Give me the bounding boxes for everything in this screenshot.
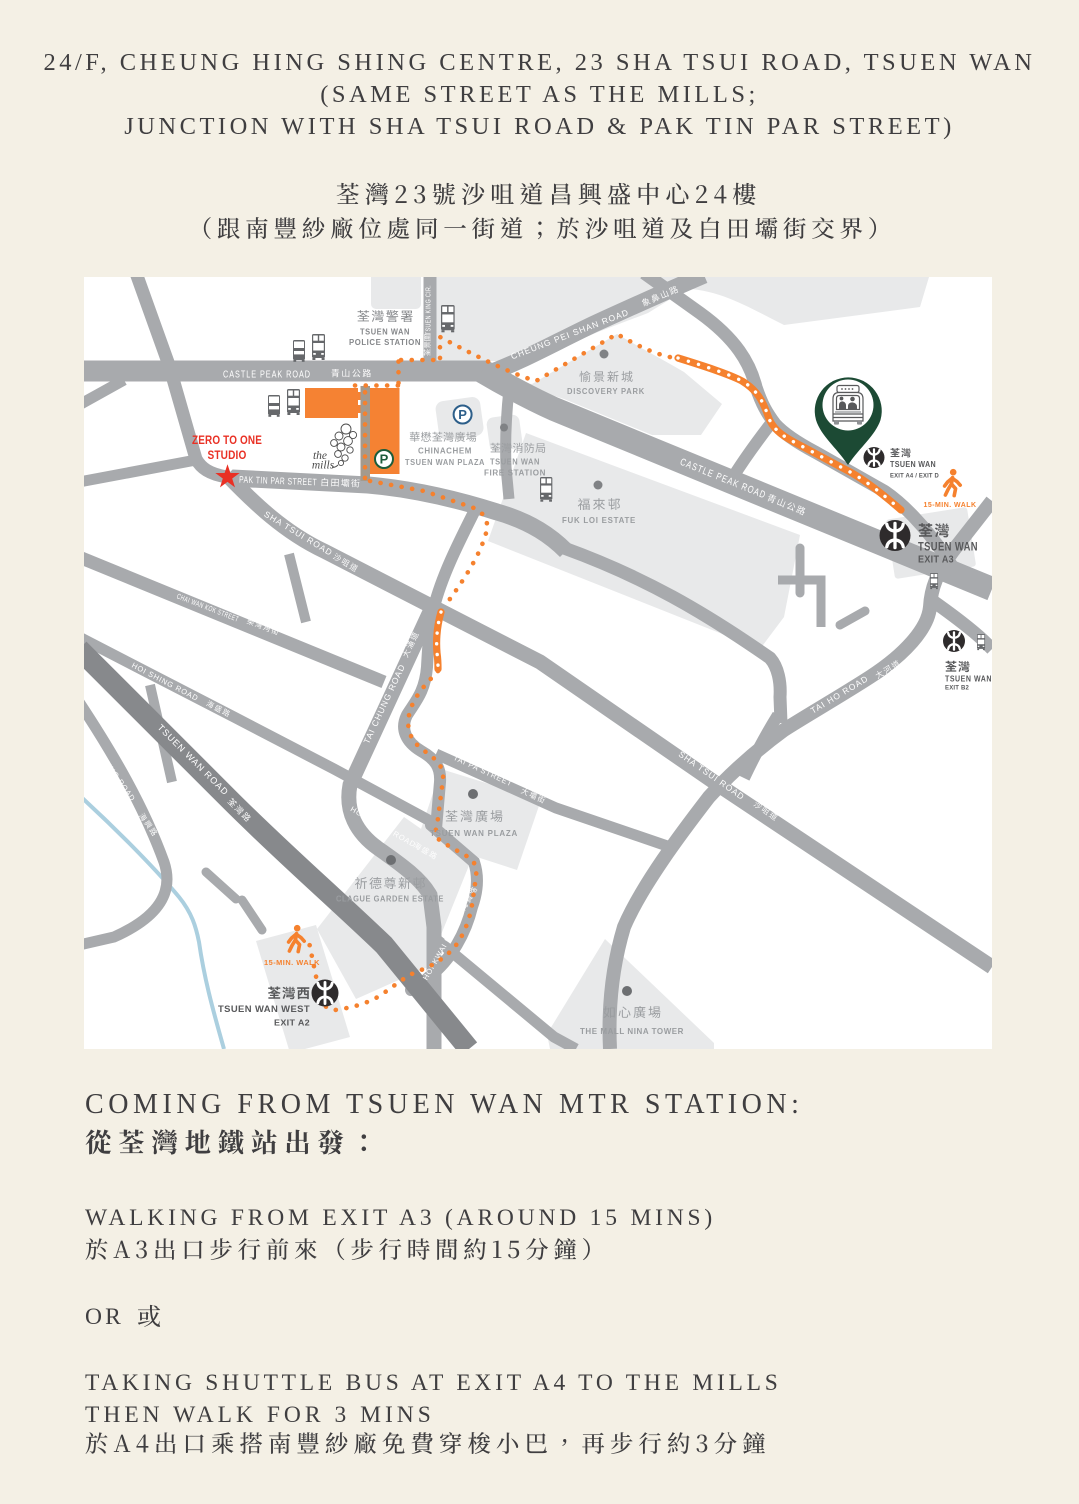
svg-text:TAKING SHUTTLE BUS AT EXIT A4: TAKING SHUTTLE BUS AT EXIT A4 TO THE MIL… — [85, 1370, 782, 1396]
svg-text:WALKING FROM EXIT A3 (AROUND 1: WALKING FROM EXIT A3 (AROUND 15 MINS) — [85, 1205, 716, 1231]
svg-text:THEN WALK FOR 3 MINS: THEN WALK FOR 3 MINS — [85, 1402, 435, 1428]
svg-text:COMING FROM TSUEN WAN MTR STAT: COMING FROM TSUEN WAN MTR STATION: — [85, 1089, 803, 1120]
svg-text:OR: OR — [85, 1304, 124, 1330]
